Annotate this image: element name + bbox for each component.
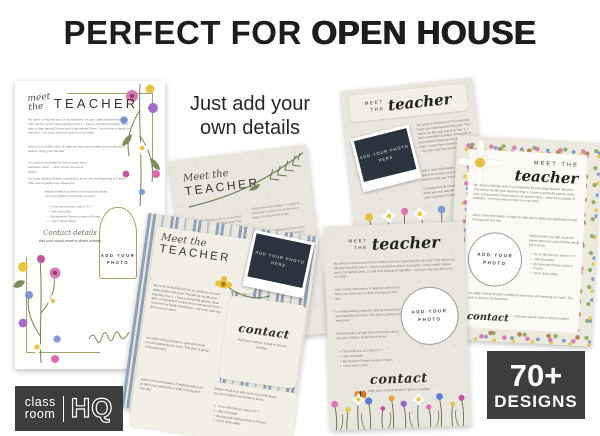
flyer-front: MEETTHE teacher My name is Nichola and I… (323, 222, 470, 431)
flyer-title-caps: TEACHER (54, 96, 139, 111)
photo-circle-label: ADD YOUR PHOTO (469, 251, 522, 269)
logo-hq: HQ (71, 393, 114, 424)
intro-paragraph: My name is Nichola and I'm so excited to… (146, 283, 227, 346)
designs-count-badge: 70+ DESIGNS (487, 351, 585, 419)
contact-label: contact (467, 311, 509, 324)
flyer-title-script: teacher (371, 232, 440, 253)
flyer-title: meetthe TEACHER (28, 94, 138, 111)
photo-circle: ADD YOUR PHOTO (400, 286, 460, 346)
flyer-title-script: teacher (387, 89, 452, 114)
script-flourish-icon (87, 327, 131, 343)
flyer-title-caps: MEETTHE (348, 238, 368, 252)
page-title-bold: OPEN HOUSE (311, 14, 536, 51)
flyer-title: MEETTHE teacher (324, 232, 465, 256)
dot-points-intro: Maybe break it up with some dot points a… (336, 330, 403, 350)
designs-label: DESIGNS (494, 393, 578, 410)
contact-subtext: Add your school email or phone number (33, 239, 107, 249)
logo-divider (63, 396, 64, 422)
flyer-striped: Meet the TEACHER ADD YOUR PHOTO HERE My … (121, 213, 319, 431)
photo-circle-label: ADD YOUR PHOTO (401, 307, 457, 324)
flower-bouquet-icon (11, 251, 69, 369)
flyer-title: MEET THE teacher (514, 159, 579, 187)
contact-label: Contact details (35, 229, 105, 237)
flyer-title-caps: MEETTHE (364, 99, 385, 115)
wildflower-meadow-icon (329, 382, 470, 431)
classroomhq-logo: classroom HQ (15, 386, 123, 431)
page-title: PERFECT FOR OPEN HOUSE (0, 14, 600, 52)
bullet-item: I like chocolate (47, 210, 109, 214)
flyer-title: MEETTHE teacher (348, 83, 468, 122)
more-info-paragraph: Add in more information. It might be abl… (28, 145, 130, 163)
flyer-border: MEET THE teacher My name is Nichola and … (447, 135, 600, 346)
bullet-item: My favourite Disney movie is Frozen (47, 215, 109, 219)
photo-polaroid: ADD YOUR PHOTO HERE (350, 125, 422, 193)
designs-count: 70+ (510, 360, 563, 391)
flyer-title-script: meetthe (27, 93, 51, 112)
polaroid-label: ADD YOUR PHOTO HERE (357, 142, 413, 169)
caption-just-add: Just add your own details (172, 92, 328, 141)
contact-subtext: Add your school email or phone number (514, 315, 576, 327)
more-info-paragraph: Add in more information. It might be abl… (138, 378, 205, 413)
bullet-item: I don't drink coffee (339, 362, 405, 369)
flyer-title-script: teacher (514, 166, 579, 187)
contact-panel: contact Add your school email or phone n… (218, 295, 307, 389)
logo-wordmark: classroom (25, 397, 56, 420)
contact-subtext: Add your school email or phone number (231, 337, 291, 365)
photo-circle: ADD YOUR PHOTO (467, 231, 524, 288)
photo-arch-label: ADD YOUR PHOTO (100, 252, 136, 266)
polaroid-label: ADD YOUR PHOTO HERE (250, 248, 308, 274)
bullet-item: I'm so tall now as I was in Yr 7 (47, 205, 109, 209)
promo-graphic: PERFECT FOR OPEN HOUSE (0, 0, 600, 436)
daisy-icon (457, 139, 503, 185)
page-title-regular: PERFECT FOR (63, 14, 301, 51)
